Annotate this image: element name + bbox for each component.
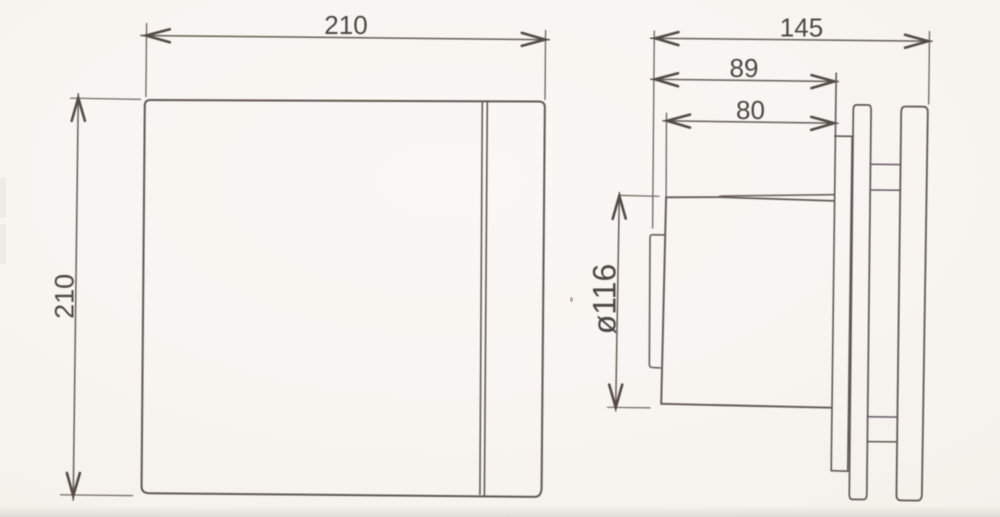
svg-text:145: 145 (780, 13, 823, 43)
svg-text:210: 210 (324, 10, 367, 40)
svg-text:89: 89 (730, 53, 759, 83)
svg-text:210: 210 (50, 274, 80, 319)
svg-text:ø116: ø116 (587, 264, 623, 335)
svg-text:80: 80 (736, 95, 765, 125)
